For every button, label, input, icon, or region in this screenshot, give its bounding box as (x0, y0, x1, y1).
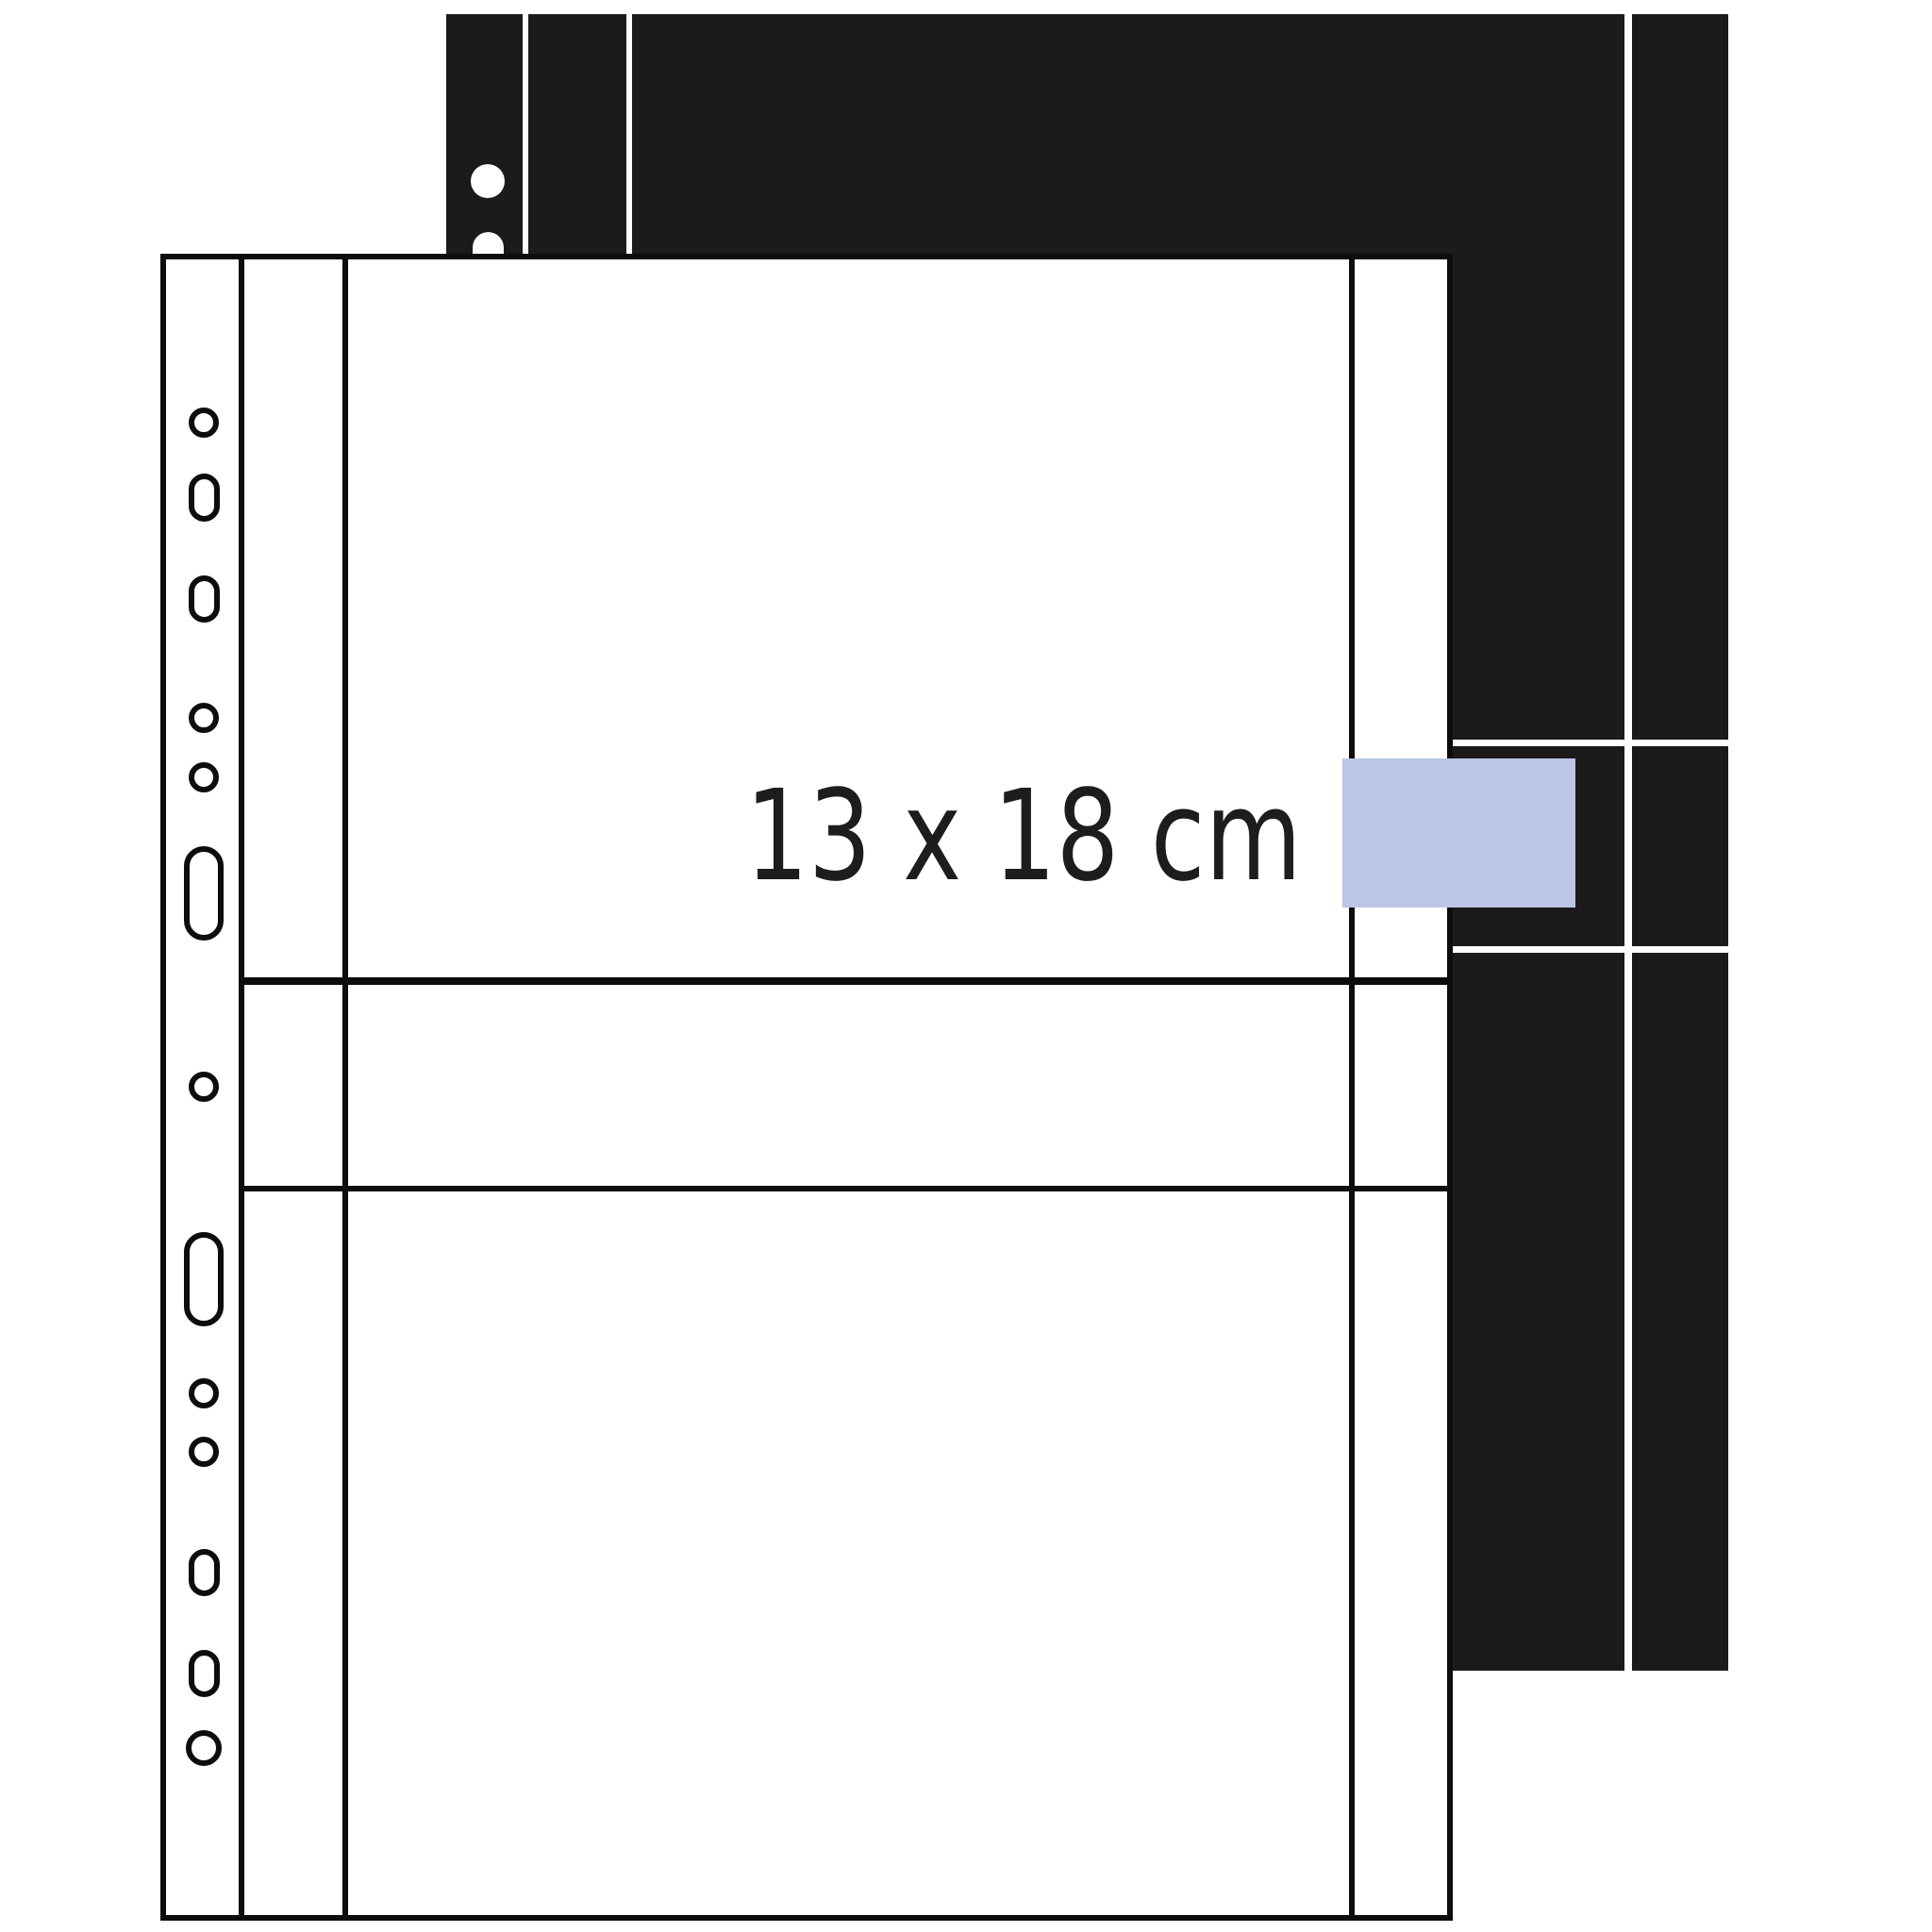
punch-hole (189, 703, 219, 733)
sleeve-right-edge (1447, 254, 1453, 1921)
front-pocket-seam-top (239, 977, 1453, 985)
punch-hole (184, 1232, 224, 1326)
front-strip-line-2 (342, 254, 348, 1921)
punch-hole (189, 575, 220, 623)
punch-hole (189, 1650, 220, 1697)
sleeve-bottom-edge (160, 1915, 1453, 1921)
index-tab (1342, 758, 1575, 908)
product-illustration: 13 x 18 cm (0, 0, 1932, 1932)
size-label: 13 x 18 cm (745, 774, 1302, 900)
front-pocket-seam-bottom (239, 1186, 1453, 1191)
front-pocket-right-seam (1349, 254, 1355, 1921)
binder-sleeve-front: 13 x 18 cm (160, 254, 1453, 1921)
punch-hole (184, 846, 224, 941)
back-pocket-right-seam (1624, 14, 1632, 1671)
punch-hole (189, 1072, 219, 1102)
punch-hole (189, 1437, 219, 1467)
sleeve-left-edge (160, 254, 166, 1921)
punch-hole (189, 1378, 219, 1408)
punch-hole (186, 1730, 222, 1766)
punch-hole (189, 408, 219, 438)
front-strip-line-1 (239, 254, 244, 1921)
punch-hole (471, 164, 505, 198)
punch-hole (189, 1549, 220, 1596)
punch-hole (189, 474, 220, 522)
sleeve-top-edge (160, 254, 1453, 259)
punch-hole (189, 762, 219, 792)
